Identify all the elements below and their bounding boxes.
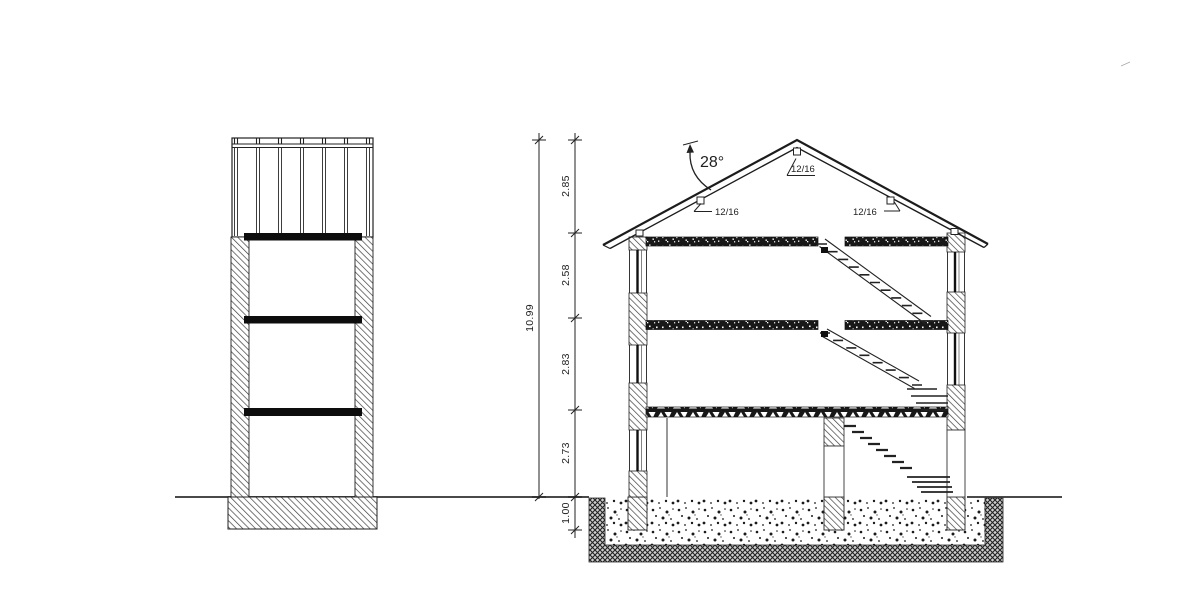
roof: [603, 140, 988, 249]
dim-total-label: 10.99: [524, 304, 536, 332]
stray-mark: [1121, 62, 1130, 66]
stair-ground-landing-steps: [907, 477, 953, 492]
roof-pitch-markers: 12/16 12/16 12/16: [694, 159, 900, 219]
pitch-label-right: 12/16: [853, 207, 877, 218]
foundation-fill: [605, 498, 985, 545]
dim-segment-4: 2.73: [560, 442, 572, 464]
stair-top-marker: [821, 247, 828, 253]
floor-slabs: [646, 237, 948, 417]
left-wall-purlin: [636, 230, 643, 236]
tower-foundation: [228, 497, 377, 529]
pitch-marker-ridge: 12/16: [787, 159, 815, 176]
right-wall-purlin: [951, 229, 958, 235]
pitch-marker-left: 12/16: [694, 204, 739, 219]
dimension-lines: [532, 133, 582, 538]
angle-arrow-tip-dash: [683, 141, 698, 145]
stair-middle-flight: [820, 329, 948, 410]
dim-segment-3: 2.83: [560, 353, 572, 375]
stair-ground-flight: [844, 426, 953, 492]
tower-floor-bands: [244, 233, 362, 416]
stairwell-wall: [824, 418, 844, 497]
roof-angle-label: 28°: [700, 154, 724, 171]
exterior-wall-right: [947, 233, 965, 497]
left-section-elevation: [228, 138, 377, 529]
dim-segment-5: 1.00: [560, 502, 572, 524]
stair-top-marker: [821, 331, 828, 337]
right-slope-purlin: [887, 197, 894, 204]
dim-segment-1: 2.85: [560, 175, 572, 197]
roof-inner-line: [610, 148, 984, 249]
first-floor-slab: [646, 407, 948, 417]
dim-segment-2: 2.58: [560, 264, 572, 286]
window-right-middle: [948, 333, 965, 385]
pier-middle: [824, 497, 844, 530]
dimension-labels: 10.99 2.85 2.58 2.83 2.73 1.00: [524, 175, 572, 524]
stud-wall-top: [232, 138, 373, 237]
window-right-top: [948, 252, 965, 292]
foundation: [589, 497, 1003, 562]
pitch-label-left: 12/16: [715, 207, 739, 218]
architectural-section-drawing: 10.99 2.85 2.58 2.83 2.73 1.00: [0, 0, 1200, 600]
attic-slab-right-part: [845, 237, 948, 246]
tower-wall-right: [355, 237, 373, 497]
second-floor-slab-right-part: [845, 321, 948, 330]
roof-outer-line: [603, 140, 988, 245]
building-cross-section: 28° 12/16 12/16 12/16: [589, 140, 1003, 562]
angle-arrowhead: [687, 144, 695, 153]
tower-wall-left: [231, 237, 249, 497]
pitch-label-ridge: 12/16: [791, 164, 815, 175]
drawing-sheet: 10.99 2.85 2.58 2.83 2.73 1.00: [0, 0, 1200, 600]
attic-slab-left-part: [646, 237, 818, 246]
window-left-middle: [630, 345, 647, 383]
second-floor-slab-left-part: [646, 321, 818, 330]
pier-left: [628, 497, 647, 530]
window-left-ground: [630, 430, 647, 471]
purlin-squares: [636, 148, 958, 236]
ridge-purlin: [794, 148, 801, 155]
stair-attic-flight: [817, 239, 933, 324]
window-left-top: [630, 250, 647, 293]
exterior-wall-left: [629, 237, 647, 497]
left-slope-purlin: [697, 197, 704, 204]
pier-right: [947, 497, 965, 530]
